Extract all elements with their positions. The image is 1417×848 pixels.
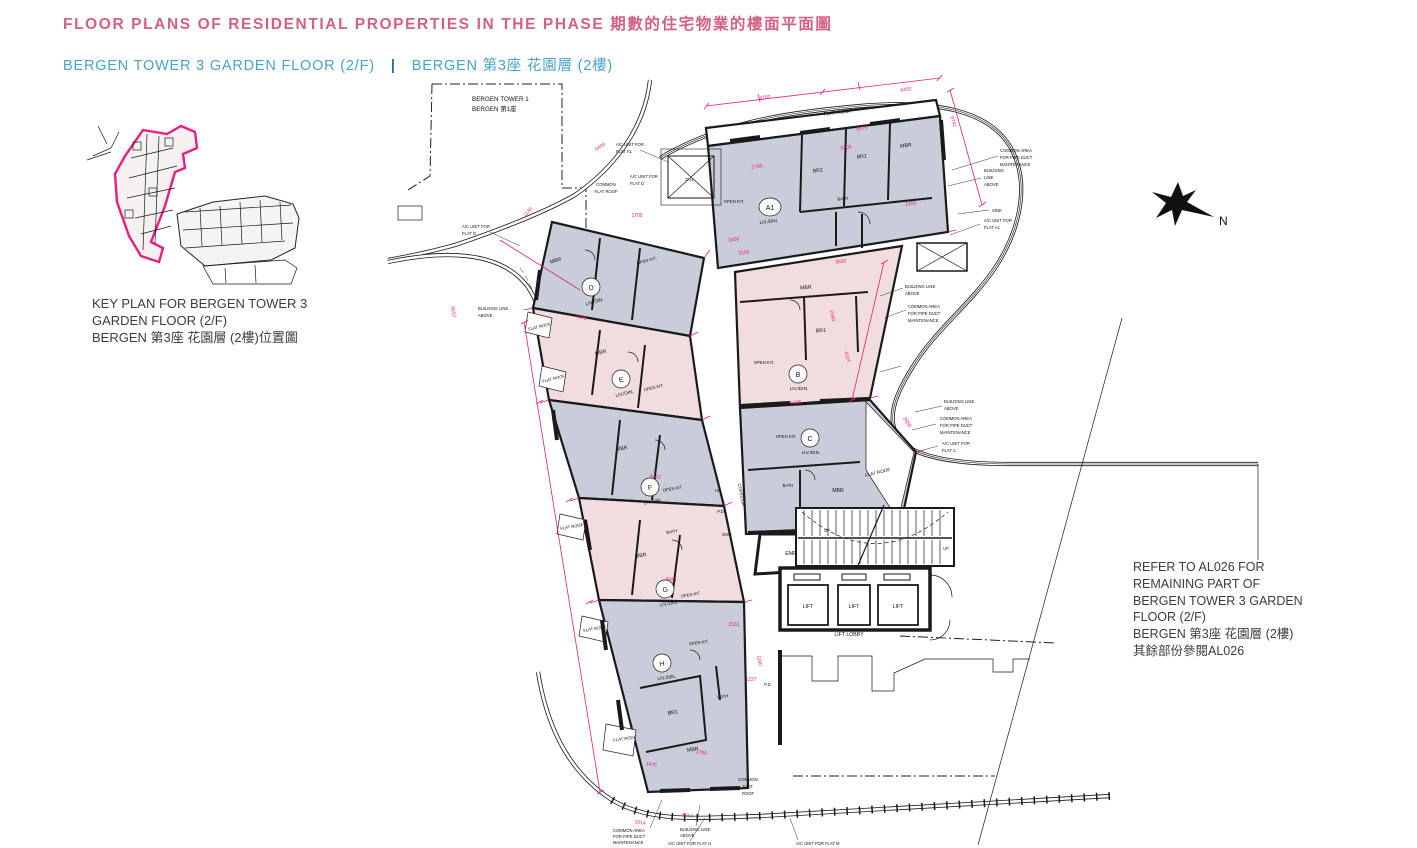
a1-open-kit: OPEN KIT. (724, 199, 744, 204)
callout-ac-d-top-2: FLAT D (630, 181, 644, 186)
b-mbr: MBR (800, 285, 812, 292)
callout-ac-d-left-1: A/C UNIT FOR (462, 224, 490, 229)
callout-ac-c-2: FLAT C (942, 448, 956, 453)
pd-label: P.D. (717, 509, 725, 514)
c-bath: BATH (783, 483, 794, 488)
b-open-kit: OPEN KIT. (754, 360, 774, 365)
core-door-arcs (930, 575, 952, 640)
tower1-label-line2: BERGEN 第1座 (472, 104, 516, 113)
callout-ac-c-1: A/C UNIT FOR (942, 441, 970, 446)
callout-building-line-bot-1: BUILDING LINE (680, 827, 710, 832)
unit-a1-id: A1 (766, 205, 775, 212)
common-flat-roof-top-2: FLAT ROOF (594, 189, 618, 194)
callout-building-line-left-1: BUILDING LINE (478, 306, 508, 311)
refer-note: REFER TO AL026 FOR REMAINING PART OF BER… (1133, 559, 1303, 660)
callout-ac-m: A/C UNIT FOR FLAT M (796, 841, 840, 846)
callout-ac-a1-top-2: FLAT A1 (616, 149, 633, 154)
callout-ac-a1-r-1: A/C UNIT FOR (984, 218, 1012, 223)
key-plan-caption-line3: BERGEN 第3座 花園層 (2樓)位置圖 (92, 329, 307, 346)
dim-9741: 9741 (948, 115, 957, 128)
callout-building-line-tr-3: ABOVE (984, 182, 999, 187)
subtitle: BERGEN TOWER 3 GARDEN FLOOR (2/F)|BERGEN… (63, 54, 613, 75)
callout-common-area-mid-1: COMMON AREA (940, 416, 972, 421)
callout-building-line-tr-1: BUILDING (984, 168, 1004, 173)
north-label: N (1219, 214, 1228, 228)
dh-label: D.H. (685, 177, 694, 182)
a1-br1: BR1 (857, 153, 868, 160)
main-floor-plan: BERGEN TOWER 1 BERGEN 第1座 (380, 75, 1270, 848)
callout-common-area-bot-1: COMMON AREA (613, 828, 645, 833)
c-mbr: MBR (832, 488, 844, 494)
callout-common-area-b-3: MAINTENANCE (908, 318, 939, 323)
callout-building-line-tr-2: LINE (984, 175, 994, 180)
common-flat-roof-bot-2: FLAT (743, 784, 753, 789)
common-flat-roof-bot-3: ROOF (742, 791, 755, 796)
unit-b-id: B (796, 372, 801, 379)
callout-common-area-tr-2: FOR PIPE DUCT (1000, 155, 1033, 160)
key-plan-caption-line1: KEY PLAN FOR BERGEN TOWER 3 (92, 295, 307, 312)
refer-note-line2: REMAINING PART OF (1133, 576, 1303, 593)
dim-5400: 5400 (594, 141, 607, 152)
dim-1227: 1227 (745, 677, 756, 683)
callout-ac-d-top-1: A/C UNIT FOR (630, 174, 658, 179)
key-plan-roads (87, 126, 119, 160)
lift-label-1: LIFT (803, 604, 814, 610)
key-plan-drawing (85, 118, 325, 290)
tower1-label-line1: BERGEN TOWER 1 (472, 96, 529, 103)
floor-plan-page: FLOOR PLANS OF RESIDENTIAL PROPERTIES IN… (0, 0, 1417, 848)
dim-4750: 4750 (759, 94, 771, 101)
key-plan-caption-line2: GARDEN FLOOR (2/F) (92, 312, 307, 329)
callout-building-line-left-2: ABOVE (478, 313, 493, 318)
callout-building-line-mid-2: ABOVE (944, 406, 959, 411)
dim-2850: 2850 (901, 416, 912, 429)
page-title: FLOOR PLANS OF RESIDENTIAL PROPERTIES IN… (63, 12, 833, 34)
sh-block (917, 243, 967, 271)
a1-br2: BR2 (813, 167, 824, 174)
refer-note-line1: REFER TO AL026 FOR (1133, 559, 1303, 576)
up-label-2: UP (943, 546, 949, 551)
callout-ac-h: A/C UNIT FOR FLAT H (668, 841, 711, 846)
unit-b-area (735, 246, 902, 408)
callout-ac-a1-top-1: A/C UNIT FOR (616, 142, 644, 147)
callout-common-area-tr-3: MAINTENANCE (1000, 162, 1031, 167)
dim-2014: 2014 (634, 819, 646, 827)
lift-label-3: LIFT (893, 604, 904, 610)
common-flat-roof-top-1: COMMON (596, 182, 616, 187)
c-open-kit: OPEN KIT. (776, 434, 796, 439)
unit-c-id: C (807, 436, 812, 443)
callout-common-area-b-2: FOR PIPE DUCT (908, 311, 941, 316)
callout-common-area-mid-3: MAINTENANCE (940, 430, 971, 435)
callout-building-line-b1-2: ABOVE (905, 291, 920, 296)
emr-label: EMR (785, 551, 797, 557)
refer-note-line5: BERGEN 第3座 花園層 (2樓) (1133, 626, 1303, 643)
callout-common-area-tr-1: COMMON AREA (1000, 148, 1032, 153)
key-plan-rest-outline (177, 196, 299, 266)
refer-note-line4: FLOOR (2/F) (1133, 609, 1303, 626)
callout-common-area-bot-2: FOR PIPE DUCT (613, 834, 646, 839)
callout-common-area-b-1: COMMON AREA (908, 304, 940, 309)
callout-building-line-b1-1: BUILDING LINE (905, 284, 935, 289)
dim-1531: 1531 (728, 622, 739, 628)
dim-5425: 5425 (790, 400, 802, 407)
common-flat-roof-bot-1: COMMON (738, 777, 758, 782)
lift-lobby-label: LIFT LOBBY (834, 632, 864, 638)
dim-1190: 1190 (755, 655, 763, 667)
callout-ac-a1-r-2: FLAT A1 (984, 225, 1001, 230)
unit-c-livdin: LIV./DIN. (802, 450, 821, 455)
callout-sink: SINK (992, 208, 1002, 213)
up-label-1: UP (824, 528, 830, 533)
refer-note-line3: BERGEN TOWER 3 GARDEN (1133, 593, 1303, 610)
callout-common-area-mid-2: FOR PIPE DUCT (940, 423, 973, 428)
emc-label: EMC (722, 532, 731, 537)
subtitle-en: BERGEN TOWER 3 GARDEN FLOOR (2/F) (63, 58, 375, 74)
dim-4012: 4012 (449, 306, 457, 318)
callout-ac-d-left-2: FLAT D (462, 231, 476, 236)
h-pd: P.D. (764, 682, 772, 687)
b-br1: BR1 (816, 328, 827, 335)
north-arrow-icon (1152, 182, 1214, 226)
lift-label-2: LIFT (849, 604, 860, 610)
dim-6450: 6450 (900, 86, 912, 93)
hr-label: HR (715, 488, 721, 493)
unit-h-id: H (659, 661, 665, 669)
left-wing-units (525, 222, 748, 792)
callout-building-line-mid-1: BUILDING LINE (944, 399, 974, 404)
subtitle-divider: | (391, 58, 396, 74)
key-plan-caption: KEY PLAN FOR BERGEN TOWER 3 GARDEN FLOOR… (92, 295, 307, 346)
callout-building-line-bot-2: ABOVE (680, 833, 695, 838)
unit-b-livdin: LIV./DIN. (790, 386, 809, 391)
callout-common-area-bot-3: MAINTENANCE (613, 840, 644, 845)
dim-1700: 1700 (631, 213, 642, 219)
refer-note-line6: 其餘部份參閱AL026 (1133, 643, 1303, 660)
subtitle-zh: BERGEN 第3座 花園層 (2樓) (412, 58, 613, 74)
